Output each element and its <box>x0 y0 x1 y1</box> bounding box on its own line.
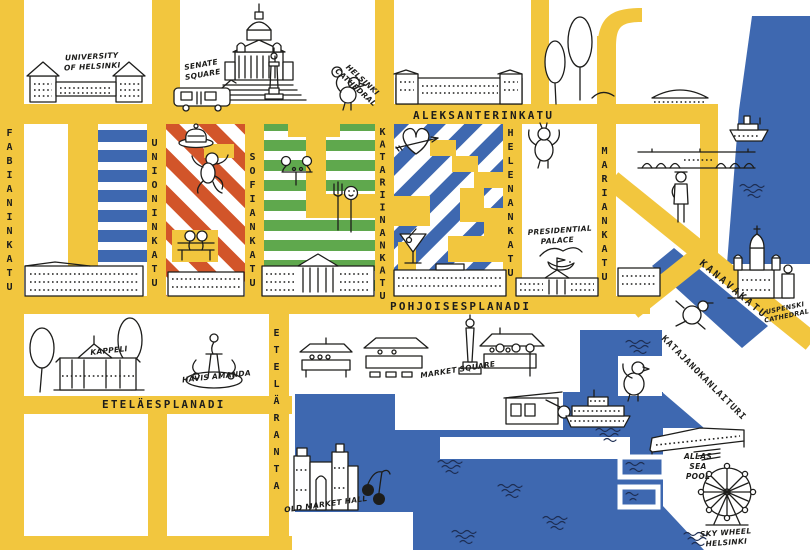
place-label-sky-wheel: SKY WHEEL HELSINKI <box>697 526 754 549</box>
quay-strip <box>440 437 630 459</box>
street-label-mariankatu: MARIANKATU <box>599 146 610 286</box>
street-label-pohjoisesplanadi: POHJOISESPLANADI <box>390 300 531 313</box>
street-label-etelaesplanadi: ETELÄESPLANADI <box>102 398 226 411</box>
kiosk-icon <box>504 392 570 424</box>
street-label-aleksanterinkatu: ALEKSANTERINKATU <box>413 109 554 122</box>
place-label-allas-sea-pool: ALLAS SEA POOL <box>676 452 720 481</box>
block-red-stripes <box>166 124 245 296</box>
place-label-university: UNIVERSITY OF HELSINKI <box>62 50 123 73</box>
street-label-sofiankatu: SOFIANKATU <box>247 152 258 292</box>
street-label-fabianinkatu: FABIANINKATU <box>4 128 15 296</box>
place-label-presidential-palace: PRESIDENTIAL PALACE <box>527 224 586 247</box>
street-label-katariinankatu: KATARIINANKATU <box>377 127 388 303</box>
person-icon <box>672 172 688 222</box>
palace-icon <box>516 258 598 296</box>
street-label-helenankatu: HELENANKATU <box>505 128 516 282</box>
street-label-unioninkatu: UNIONINKATU <box>149 138 160 292</box>
block-blue-bars <box>98 130 147 262</box>
street-label-etelaranta: ETELÄRANTA <box>271 328 282 498</box>
cheering-bird-icon <box>529 123 560 168</box>
harbor-pier-edge <box>662 392 704 428</box>
pavilion-icon <box>652 90 708 102</box>
long-building-icon <box>394 70 522 104</box>
helsinki-illustrated-map: ALEKSANTERINKATU POHJOISESPLANADI ETELÄE… <box>0 0 810 550</box>
tram-icon <box>174 80 236 111</box>
